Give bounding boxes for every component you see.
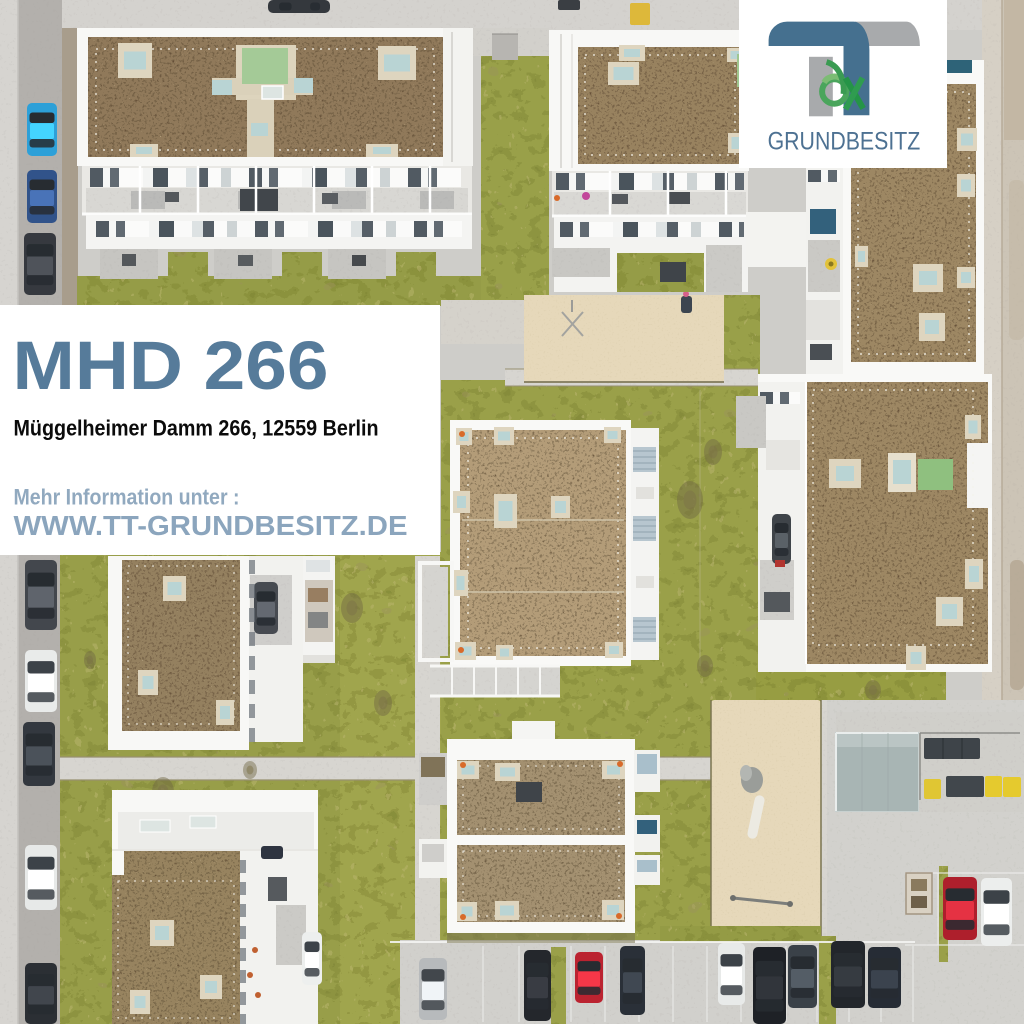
svg-text:Müggelheimer Damm 266, 12559 B: Müggelheimer Damm 266, 12559 Berlin (14, 416, 379, 441)
svg-text:Mehr Information unter :: Mehr Information unter : (14, 485, 240, 510)
svg-text:MHD 266: MHD 266 (13, 327, 329, 404)
svg-text:GRUNDBESITZ: GRUNDBESITZ (768, 128, 921, 156)
svg-text:WWW.TT-GRUNDBESITZ.DE: WWW.TT-GRUNDBESITZ.DE (14, 510, 408, 541)
